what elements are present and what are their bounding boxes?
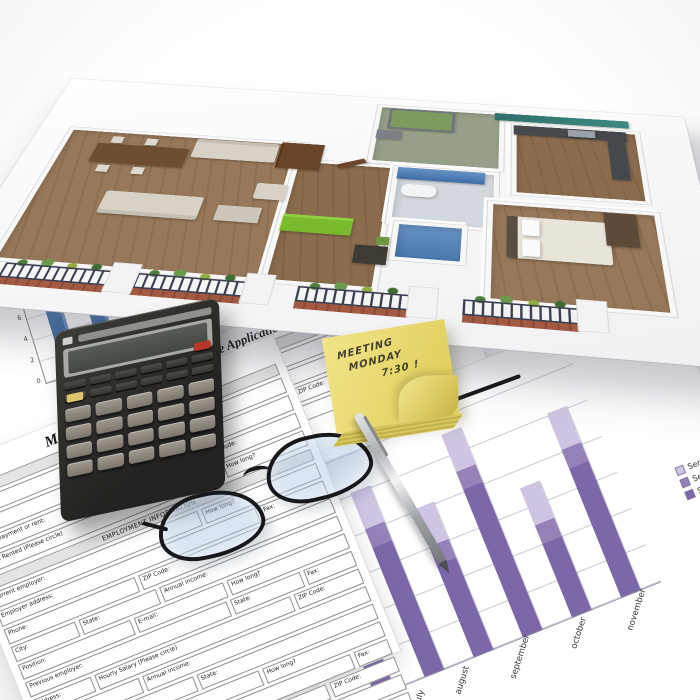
bar-segment-series-1 <box>436 557 493 657</box>
dresser <box>376 130 402 140</box>
form-field-label: Fax: <box>357 649 371 660</box>
legend-label: Series 3 <box>686 451 700 471</box>
desk <box>352 244 388 265</box>
desk-chair <box>375 236 389 245</box>
floor-plan <box>0 82 700 340</box>
stock-photo-scene: 0246810 januaryfebruarymarchapril Applic… <box>0 0 700 700</box>
legend-swatch <box>684 489 696 501</box>
sticky-note-handwriting: MEETING MONDAY 7:30 ! <box>336 330 420 393</box>
form-field-label: State: <box>200 669 219 682</box>
wall-pier <box>577 300 609 333</box>
pillow <box>522 239 540 257</box>
form-field-label: Phone: <box>7 623 29 637</box>
form-field-label: E-mail: <box>137 611 159 625</box>
calculator-logo <box>63 336 73 345</box>
bar-segment-series-1 <box>542 536 591 617</box>
wall-pier <box>407 286 438 318</box>
purple-month-label: november <box>625 588 695 648</box>
wardrobe <box>275 142 325 170</box>
eyeglasses-left-lens <box>151 480 271 569</box>
bar-segment-series-1 <box>569 461 640 598</box>
shower-room <box>389 220 468 265</box>
purple-chart-legend: Series 3Series 2Series 1 <box>673 447 700 504</box>
legend-swatch <box>679 477 691 489</box>
calculator-yellow-key <box>67 391 84 403</box>
form-field-label: State: <box>82 614 101 627</box>
form-field-label: Fax: <box>306 567 320 578</box>
form-field-label: City: <box>14 643 29 654</box>
armchair <box>252 183 287 201</box>
pillow <box>522 219 540 236</box>
sticky-note-pad: MEETING MONDAY 7:30 ! <box>322 319 465 453</box>
bathtub <box>400 183 437 198</box>
bedroom-wardrobe <box>603 213 640 249</box>
form-field-label: State: <box>233 594 252 607</box>
legend-swatch <box>674 465 686 477</box>
purple-month-label: september <box>508 634 579 696</box>
calculator-lcd <box>68 322 208 374</box>
coffee-table <box>213 205 262 224</box>
